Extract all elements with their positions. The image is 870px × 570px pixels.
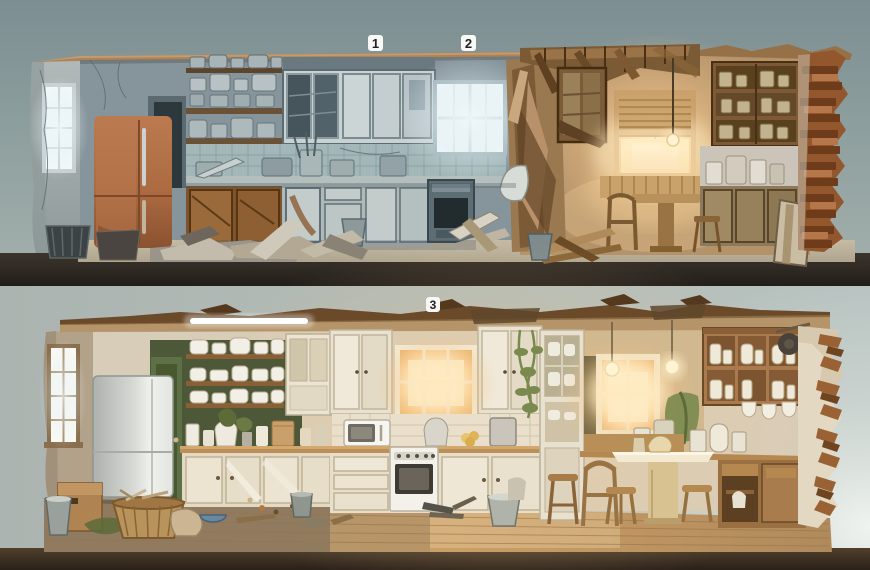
svg-text:1: 1 <box>372 36 379 51</box>
svg-text:2: 2 <box>465 36 472 51</box>
svg-text:3: 3 <box>430 298 437 312</box>
